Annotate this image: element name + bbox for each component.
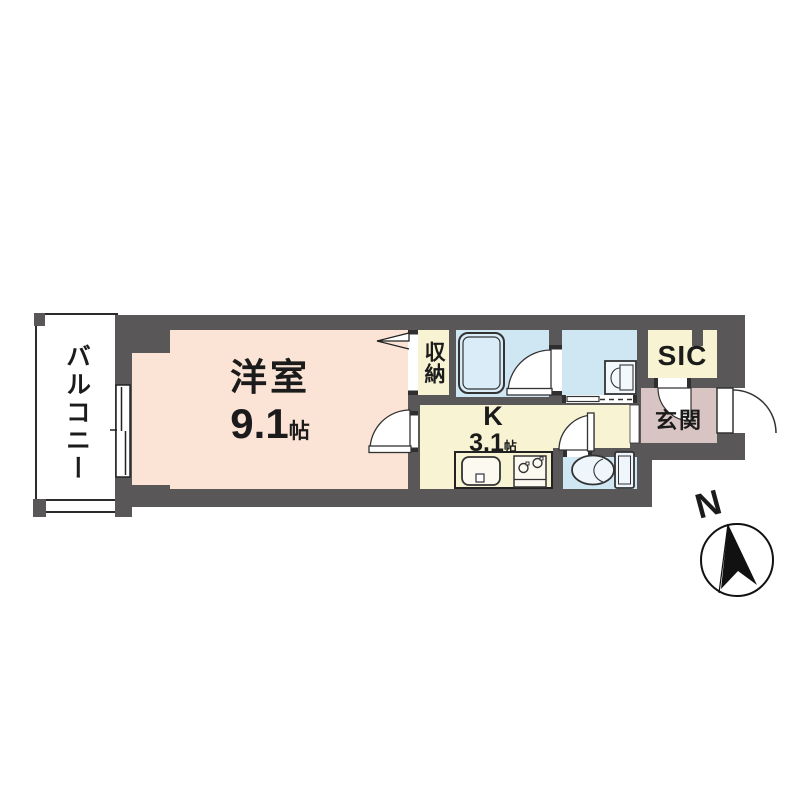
kitchen-size: 3.1帖: [420, 430, 566, 456]
bathtub-icon: [459, 333, 504, 393]
folding-door-icon: [377, 333, 409, 349]
toilet-icon: [572, 452, 634, 488]
bathroom-door: [507, 345, 562, 396]
kitchen-label: K 3.1帖: [420, 402, 566, 457]
compass-icon: [701, 524, 773, 596]
vanity-sink-icon: [605, 361, 636, 394]
kitchen-sink-icon: [462, 457, 500, 485]
floor-plan-canvas: バルコニー: [0, 0, 800, 800]
western-room-size: 9.1帖: [132, 402, 408, 446]
entrance-threshold: [630, 405, 639, 443]
western-room-label: 洋室 9.1帖: [132, 359, 408, 446]
entrance-door-icon: [717, 388, 776, 433]
closet-label: 収納: [416, 334, 450, 392]
gas-stove-icon: [514, 456, 546, 487]
entrance-label: 玄関: [641, 409, 717, 432]
western-room-name: 洋室: [132, 359, 408, 398]
sic-label: SIC: [648, 341, 717, 370]
sliding-window-icon: [110, 385, 130, 477]
sliding-door-icon: [562, 395, 637, 403]
kitchen-name: K: [420, 402, 566, 430]
